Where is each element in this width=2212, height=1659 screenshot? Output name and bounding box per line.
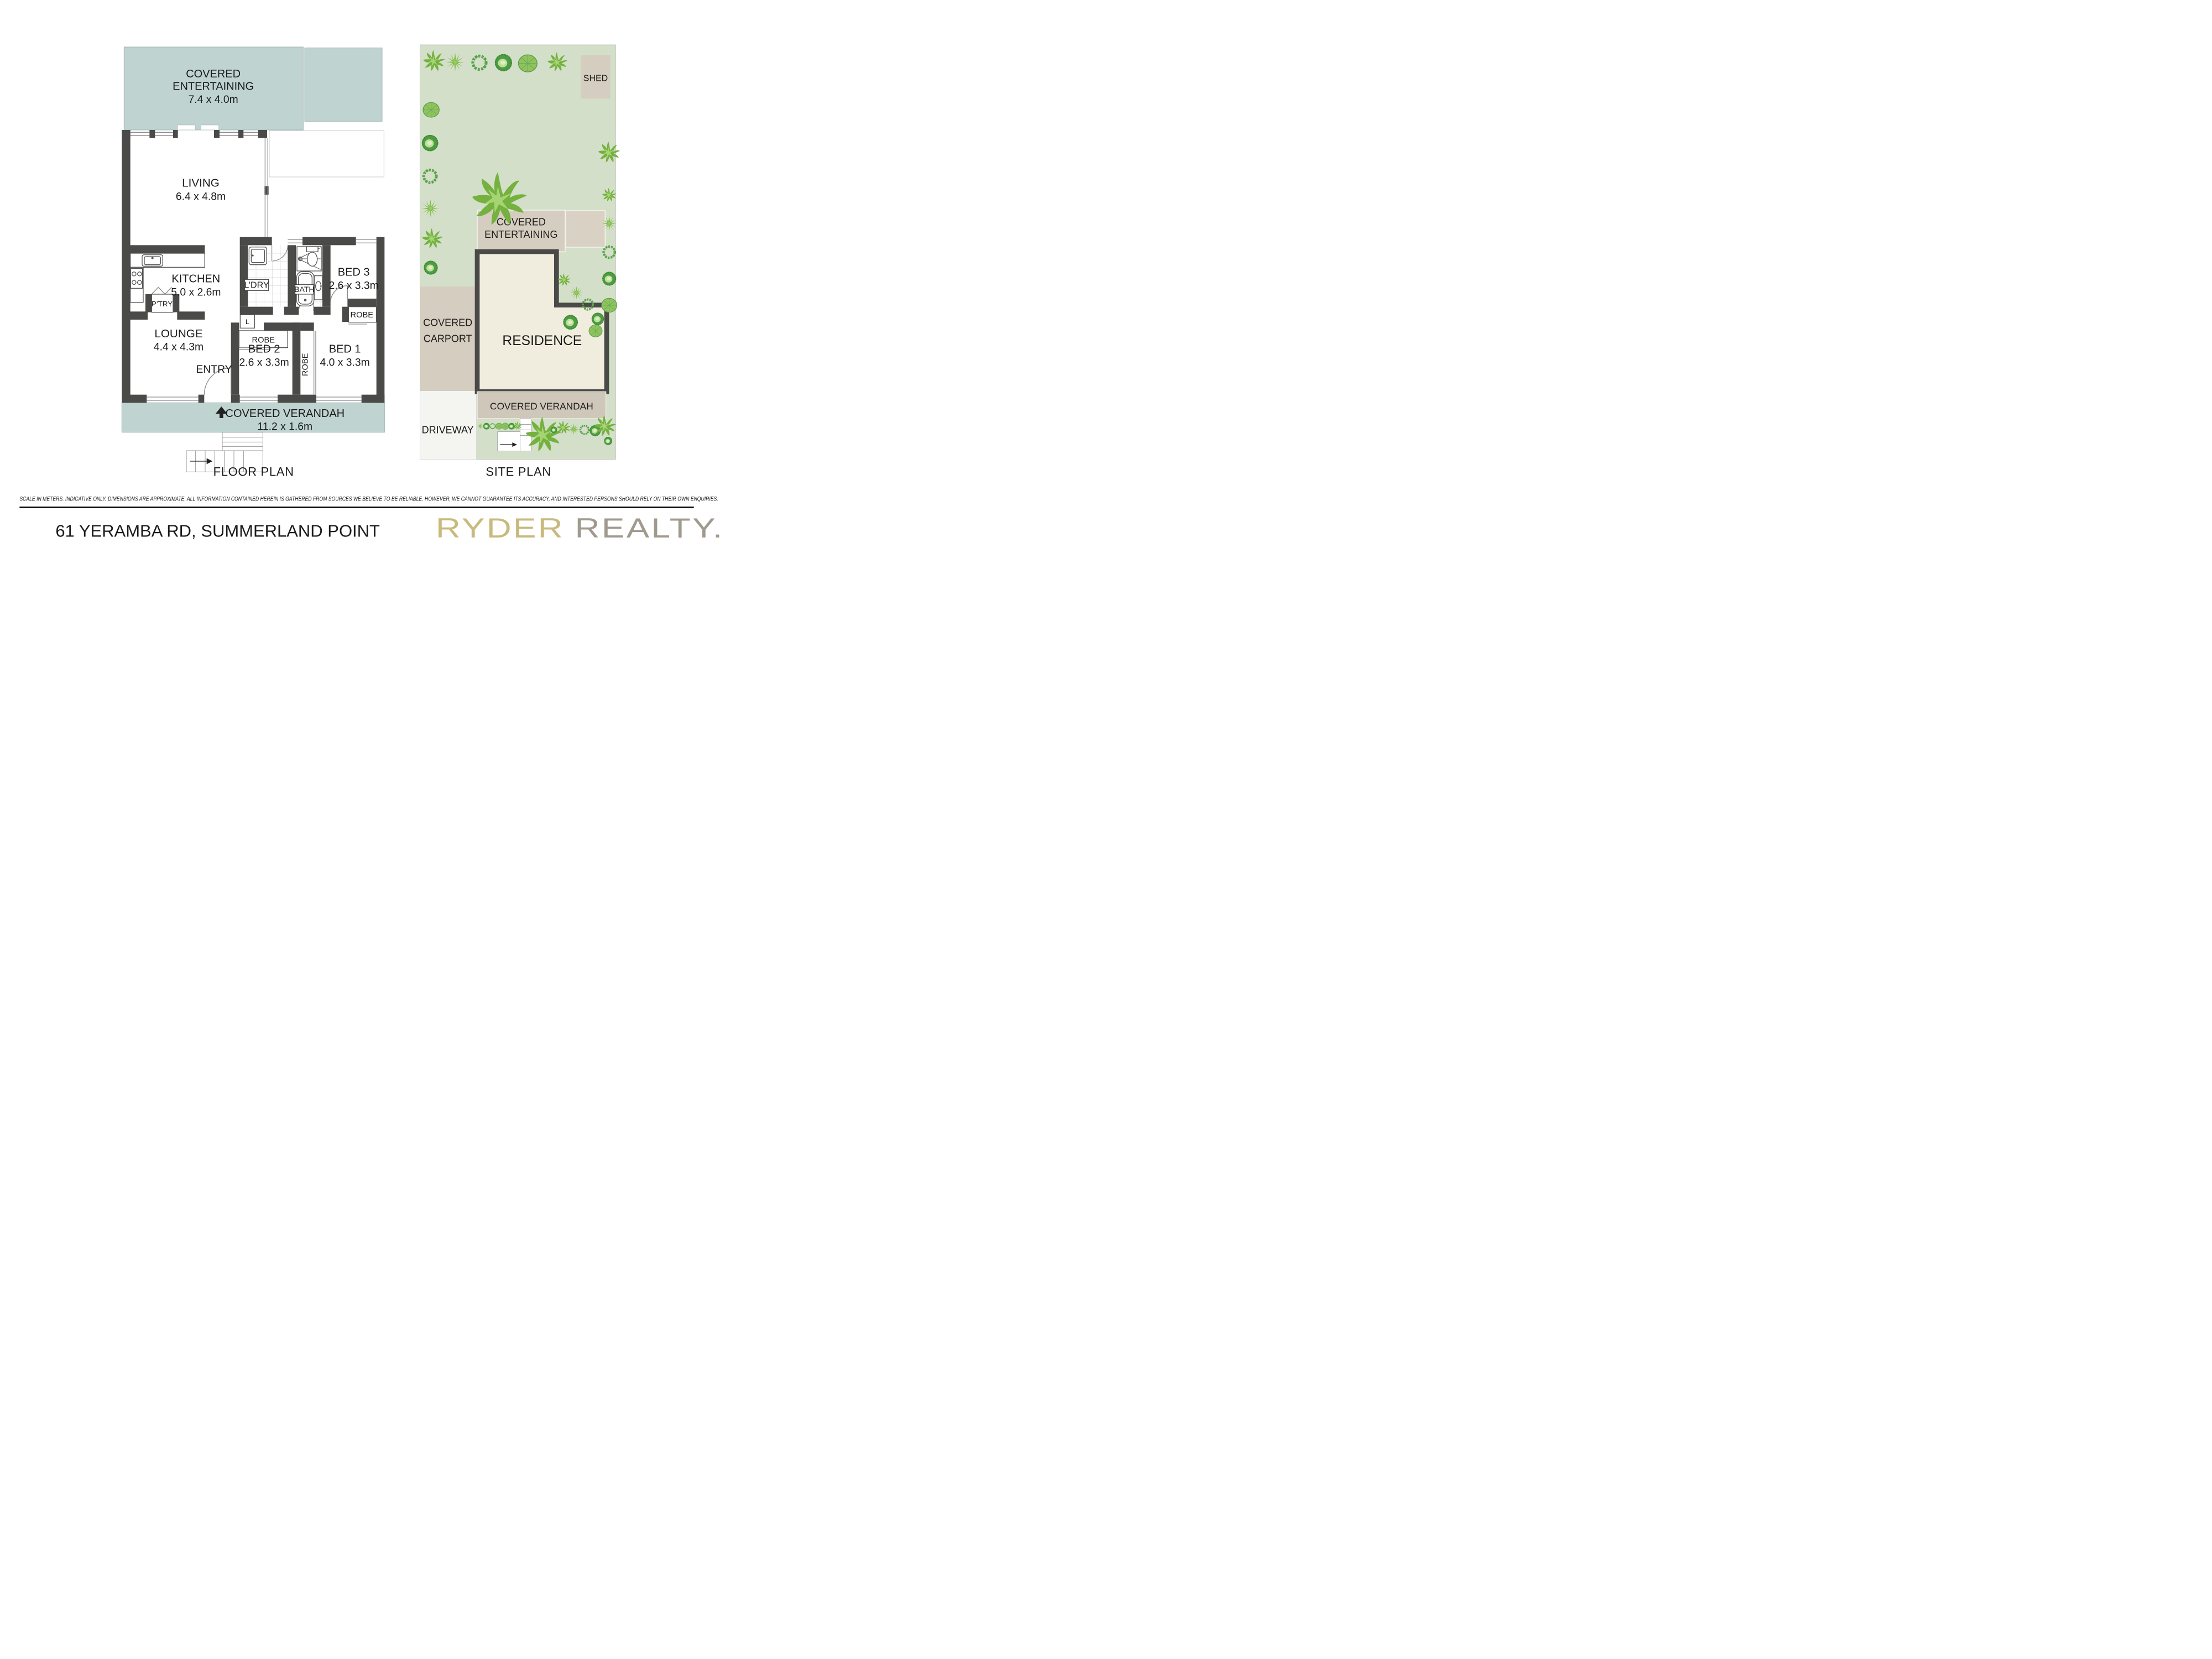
tree-icon [602, 298, 617, 312]
slider-track [201, 125, 219, 130]
tree-icon [602, 272, 616, 286]
tree-icon [495, 423, 502, 429]
carport-label-1: COVERED [423, 317, 472, 328]
lounge-dims: 4.4 x 4.3m [154, 341, 204, 353]
site-plan-title: SITE PLAN [486, 465, 551, 479]
verandah-dims: 11.2 x 1.6m [258, 421, 313, 432]
driveway-label: DRIVEWAY [422, 424, 474, 435]
residence-label: RESIDENCE [502, 333, 582, 348]
divider-rule [19, 507, 693, 508]
bed1-label: BED 1 [329, 343, 361, 355]
floorplan-page: COVERED ENTERTAINING 7.4 x 4.0m COVERED … [0, 0, 738, 553]
bed3-robe-label: ROBE [351, 311, 374, 320]
entertaining-dims: 7.4 x 4.0m [189, 94, 238, 106]
linen-label: L [246, 318, 249, 326]
floor-plan-title: FLOOR PLAN [213, 465, 294, 479]
tree-icon [495, 54, 512, 71]
kitchen-label: KITCHEN [171, 273, 220, 285]
cooktop-icon [131, 268, 142, 288]
bed3-label: BED 3 [338, 266, 370, 278]
disclaimer-text: SCALE IN METERS. INDICATIVE ONLY. DIMENS… [19, 495, 718, 502]
lounge-label: LOUNGE [154, 327, 202, 340]
bed2-robe-label: ROBE [252, 336, 275, 345]
side-landing-outline [269, 131, 384, 177]
toilet-tank [306, 247, 318, 252]
agency-logo-name: RYDER [436, 513, 565, 544]
pantry-label: P’TRY [152, 300, 173, 308]
tree-icon [423, 102, 439, 117]
bathroom-fixtures [249, 247, 322, 306]
bed1-robe-label: ROBE [301, 353, 310, 376]
site-entertaining-label-2: ENTERTAINING [484, 229, 557, 240]
covered-entertaining-extension [305, 48, 382, 122]
tree-icon [424, 261, 438, 275]
floor-plan: COVERED ENTERTAINING 7.4 x 4.0m COVERED … [122, 47, 384, 479]
tree-icon [508, 423, 515, 430]
site-entertaining-label-1: COVERED [497, 216, 546, 227]
entertaining-label-2: ENTERTAINING [173, 81, 254, 93]
agency-logo: RYDERREALTY. [436, 513, 724, 544]
living-dims: 6.4 x 4.8m [176, 191, 226, 202]
tree-icon [589, 325, 602, 337]
entry-label: ENTRY [196, 364, 232, 375]
tree-icon [592, 313, 604, 325]
tree-icon [563, 315, 577, 329]
tree-icon [502, 423, 509, 430]
property-address: 61 YERAMBA RD, SUMMERLAND POINT [55, 522, 380, 541]
shed-label: SHED [583, 74, 608, 84]
bed2-label: BED 2 [248, 343, 280, 355]
tree-icon [604, 437, 612, 445]
kitchen-dims: 5.0 x 2.6m [171, 287, 221, 299]
tree-icon [518, 55, 537, 72]
entertaining-label-1: COVERED [186, 68, 241, 80]
tree-icon [483, 423, 490, 430]
site-verandah-label: COVERED VERANDAH [490, 401, 593, 412]
slider-track [178, 125, 195, 130]
laundry-label: L’DRY [244, 281, 269, 290]
tree-icon [551, 426, 557, 433]
tree-icon [422, 135, 438, 151]
verandah-label: COVERED VERANDAH [226, 408, 345, 420]
plan-canvas: COVERED ENTERTAINING 7.4 x 4.0m COVERED … [0, 0, 738, 553]
carport-label-2: CARPORT [424, 333, 472, 344]
bath-label: BATH [294, 285, 314, 294]
footer: SCALE IN METERS. INDICATIVE ONLY. DIMENS… [19, 495, 724, 544]
site-plan: SHED COVERED CARPORT DRIVEWAY COVERED EN… [420, 45, 620, 479]
agency-logo-suffix: REALTY. [575, 513, 724, 544]
bed1-dims: 4.0 x 3.3m [320, 357, 370, 368]
toilet-icon [307, 252, 317, 266]
site-entertaining-extension [566, 211, 605, 247]
kitchen-bench [131, 253, 205, 267]
bed2-dims: 2.6 x 3.3m [239, 357, 289, 368]
bed3-dims: 2.6 x 3.3m [329, 280, 379, 291]
living-label: LIVING [182, 176, 220, 189]
